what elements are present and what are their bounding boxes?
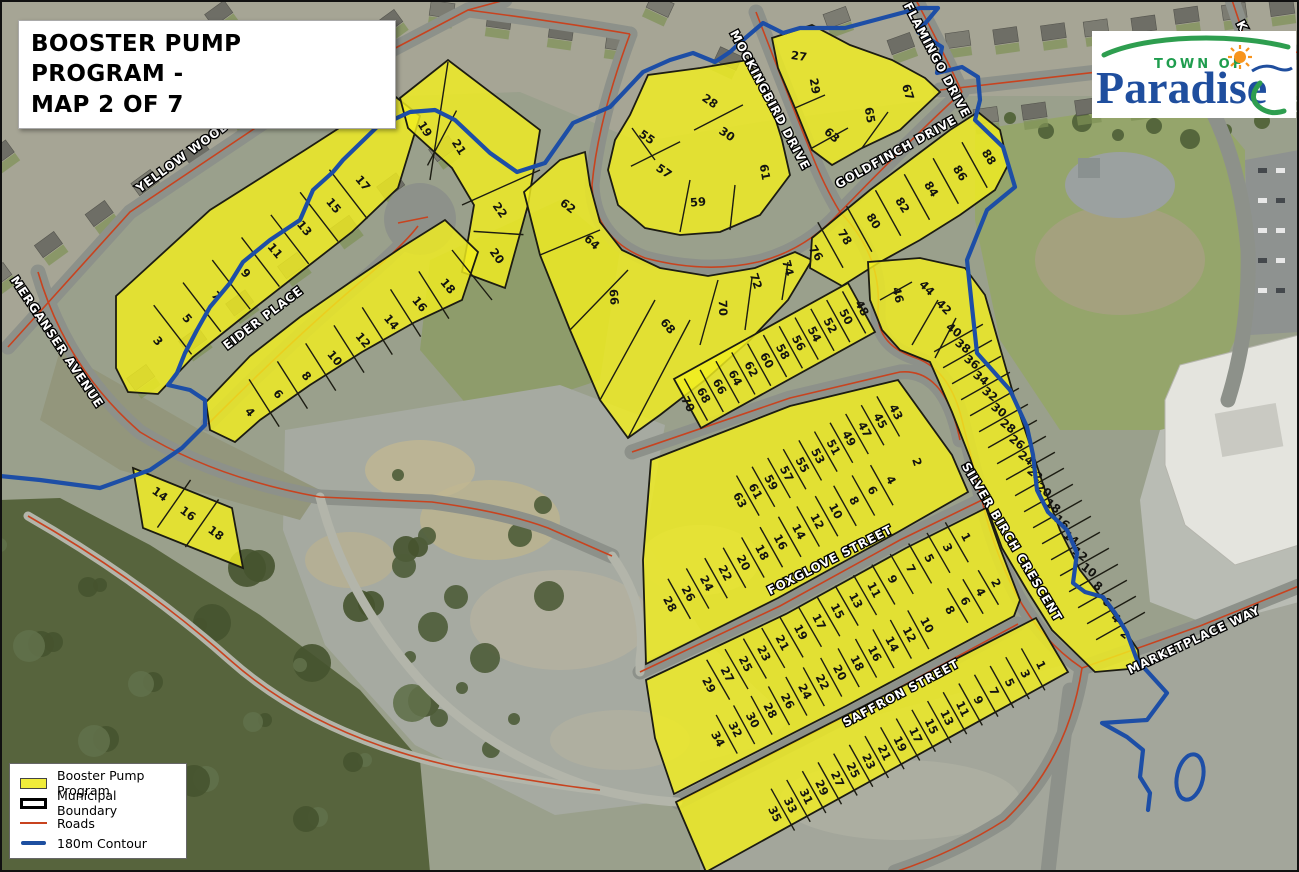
legend-label: Municipal Boundary xyxy=(57,788,176,818)
lot-number: 29 xyxy=(807,77,824,95)
lot-number: 65 xyxy=(862,106,879,124)
logo-swoosh-top xyxy=(1104,38,1288,55)
lot-number: 27 xyxy=(790,48,808,64)
municipal-boundary-swatch-icon xyxy=(20,798,47,809)
legend-label: Roads xyxy=(57,816,95,831)
logo-paradise: Paradise xyxy=(1096,62,1267,113)
logo-graphic: TOWN OF Paradise xyxy=(1092,31,1296,118)
contour-swatch-icon xyxy=(20,841,47,845)
legend-label: 180m Contour xyxy=(57,836,147,851)
map-title-box: BOOSTER PUMP PROGRAM - MAP 2 OF 7 xyxy=(18,20,396,129)
logo-sun-icon xyxy=(1228,45,1252,69)
map-canvas[interactable]: 3579111315171921468101214161820221416182… xyxy=(0,0,1299,872)
town-of-paradise-logo: TOWN OF Paradise xyxy=(1092,31,1296,118)
booster-pump-swatch-icon xyxy=(20,778,47,789)
lot-number: 70 xyxy=(716,300,731,316)
roads-swatch-icon xyxy=(20,822,47,824)
lot-number: 61 xyxy=(757,163,774,181)
map-title-line2: MAP 2 OF 7 xyxy=(31,90,383,120)
map-page: 3579111315171921468101214161820221416182… xyxy=(0,0,1299,872)
legend-item-contour: 180m Contour xyxy=(20,833,176,853)
legend: Booster Pump Program Municipal Boundary … xyxy=(9,763,187,859)
map-title-line1: BOOSTER PUMP PROGRAM - xyxy=(31,29,383,90)
lot-number: 59 xyxy=(689,194,706,209)
legend-item-municipal: Municipal Boundary xyxy=(20,793,176,813)
